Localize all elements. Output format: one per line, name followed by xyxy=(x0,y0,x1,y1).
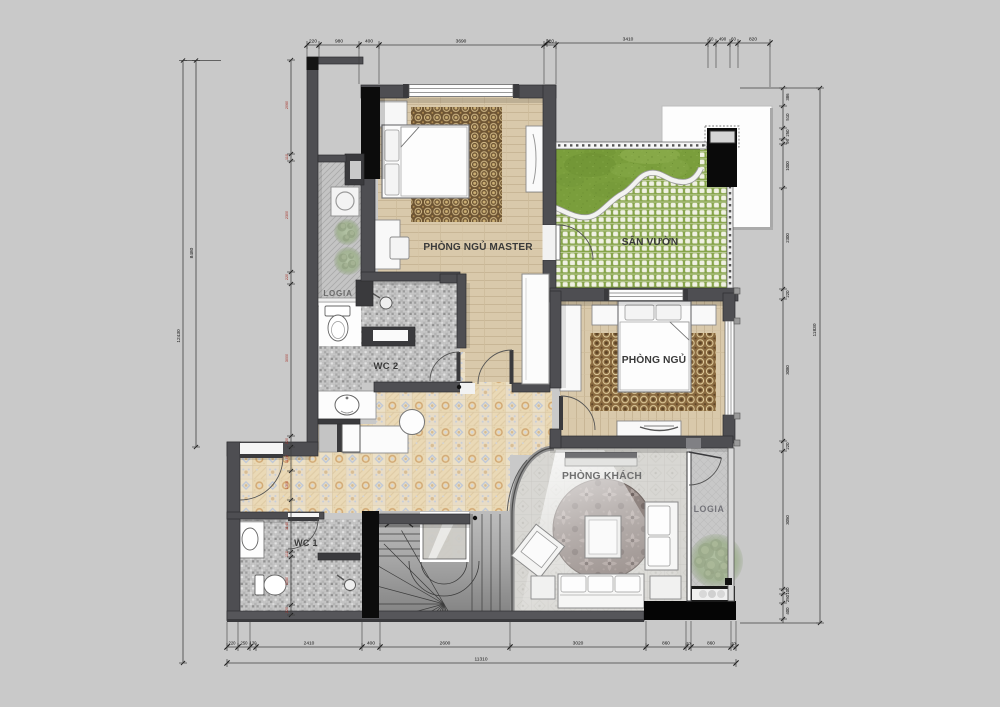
svg-text:1300: 1300 xyxy=(285,481,289,489)
svg-text:SÂN VƯỜN: SÂN VƯỜN xyxy=(622,235,678,248)
svg-text:12430: 12430 xyxy=(176,329,182,343)
svg-text:220: 220 xyxy=(229,641,237,646)
svg-text:250: 250 xyxy=(785,129,790,137)
svg-text:1140: 1140 xyxy=(285,522,289,530)
svg-text:2060: 2060 xyxy=(285,101,289,109)
svg-text:510: 510 xyxy=(785,113,790,121)
svg-text:LOGIA: LOGIA xyxy=(694,504,725,514)
svg-text:PHÒNG NGỦ MASTER: PHÒNG NGỦ MASTER xyxy=(423,240,533,253)
svg-text:11830: 11830 xyxy=(812,323,818,336)
svg-text:96: 96 xyxy=(785,139,790,144)
svg-text:110: 110 xyxy=(285,154,289,160)
svg-text:3690: 3690 xyxy=(456,39,467,45)
svg-text:2300: 2300 xyxy=(285,211,289,219)
svg-text:1050: 1050 xyxy=(285,577,289,585)
svg-text:220: 220 xyxy=(785,442,790,450)
svg-text:400: 400 xyxy=(365,39,373,45)
svg-text:220: 220 xyxy=(285,274,289,280)
svg-text:220: 220 xyxy=(285,607,289,613)
svg-text:820: 820 xyxy=(749,37,757,43)
svg-text:400: 400 xyxy=(785,607,790,615)
svg-text:2600: 2600 xyxy=(440,641,451,647)
svg-text:3410: 3410 xyxy=(623,37,634,43)
svg-text:220: 220 xyxy=(309,39,317,45)
svg-text:3020: 3020 xyxy=(573,641,584,647)
svg-text:220: 220 xyxy=(285,438,289,444)
svg-text:100: 100 xyxy=(785,587,790,595)
svg-text:8480: 8480 xyxy=(189,247,195,258)
svg-text:860: 860 xyxy=(707,641,715,646)
svg-text:220: 220 xyxy=(785,290,790,298)
svg-text:400: 400 xyxy=(367,641,375,647)
svg-text:11310: 11310 xyxy=(475,657,488,663)
svg-text:60: 60 xyxy=(709,37,714,42)
svg-text:2300: 2300 xyxy=(785,233,790,243)
svg-text:WC 2: WC 2 xyxy=(374,361,399,372)
svg-text:2410: 2410 xyxy=(304,641,315,647)
svg-text:130: 130 xyxy=(250,641,258,646)
svg-text:1000: 1000 xyxy=(785,161,790,171)
svg-text:3000: 3000 xyxy=(285,354,289,362)
svg-text:3050: 3050 xyxy=(785,515,790,525)
svg-text:LOGIA: LOGIA xyxy=(323,289,352,298)
svg-text:250: 250 xyxy=(241,641,249,646)
svg-text:860: 860 xyxy=(662,641,670,646)
svg-text:3080: 3080 xyxy=(785,365,790,375)
svg-text:250: 250 xyxy=(785,594,790,602)
svg-text:490: 490 xyxy=(719,37,727,42)
svg-text:110: 110 xyxy=(285,551,289,557)
svg-text:980: 980 xyxy=(335,39,343,45)
svg-text:PHÒNG KHÁCH: PHÒNG KHÁCH xyxy=(562,469,642,482)
svg-text:386: 386 xyxy=(785,93,790,101)
svg-text:WC 1: WC 1 xyxy=(294,538,318,548)
svg-text:PHÒNG NGỦ: PHÒNG NGỦ xyxy=(622,353,686,366)
svg-text:60: 60 xyxy=(731,37,736,42)
svg-text:1100: 1100 xyxy=(285,455,289,463)
